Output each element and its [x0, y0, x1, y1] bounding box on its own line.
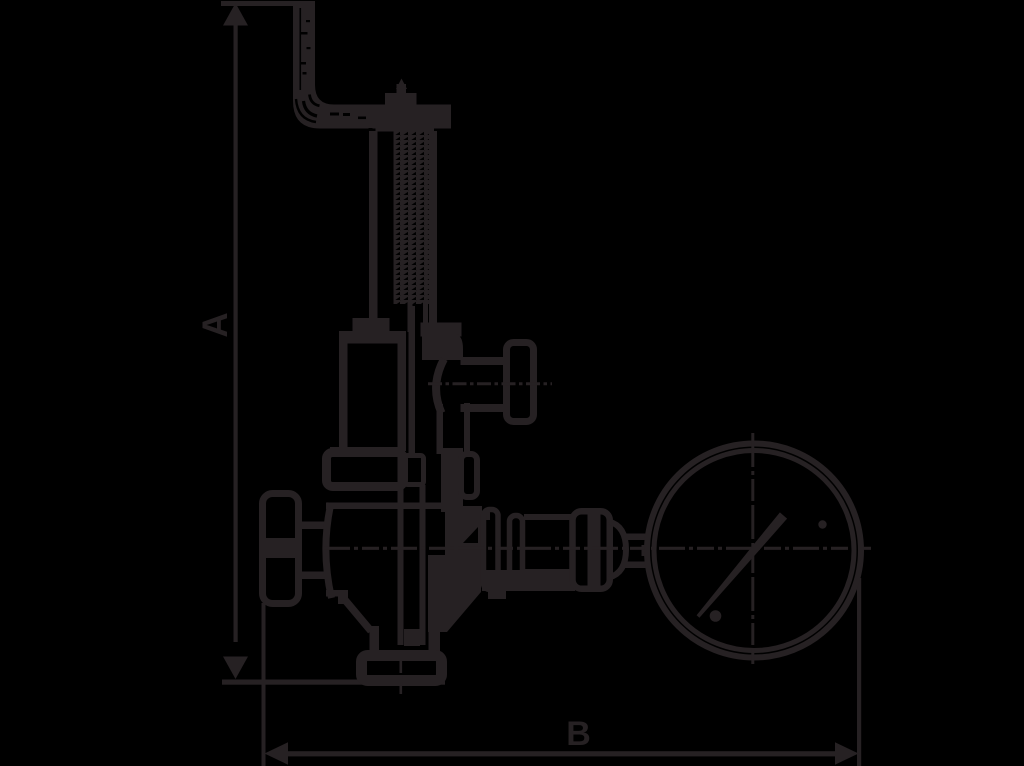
- svg-text:A: A: [196, 312, 235, 337]
- svg-text:B: B: [566, 715, 591, 753]
